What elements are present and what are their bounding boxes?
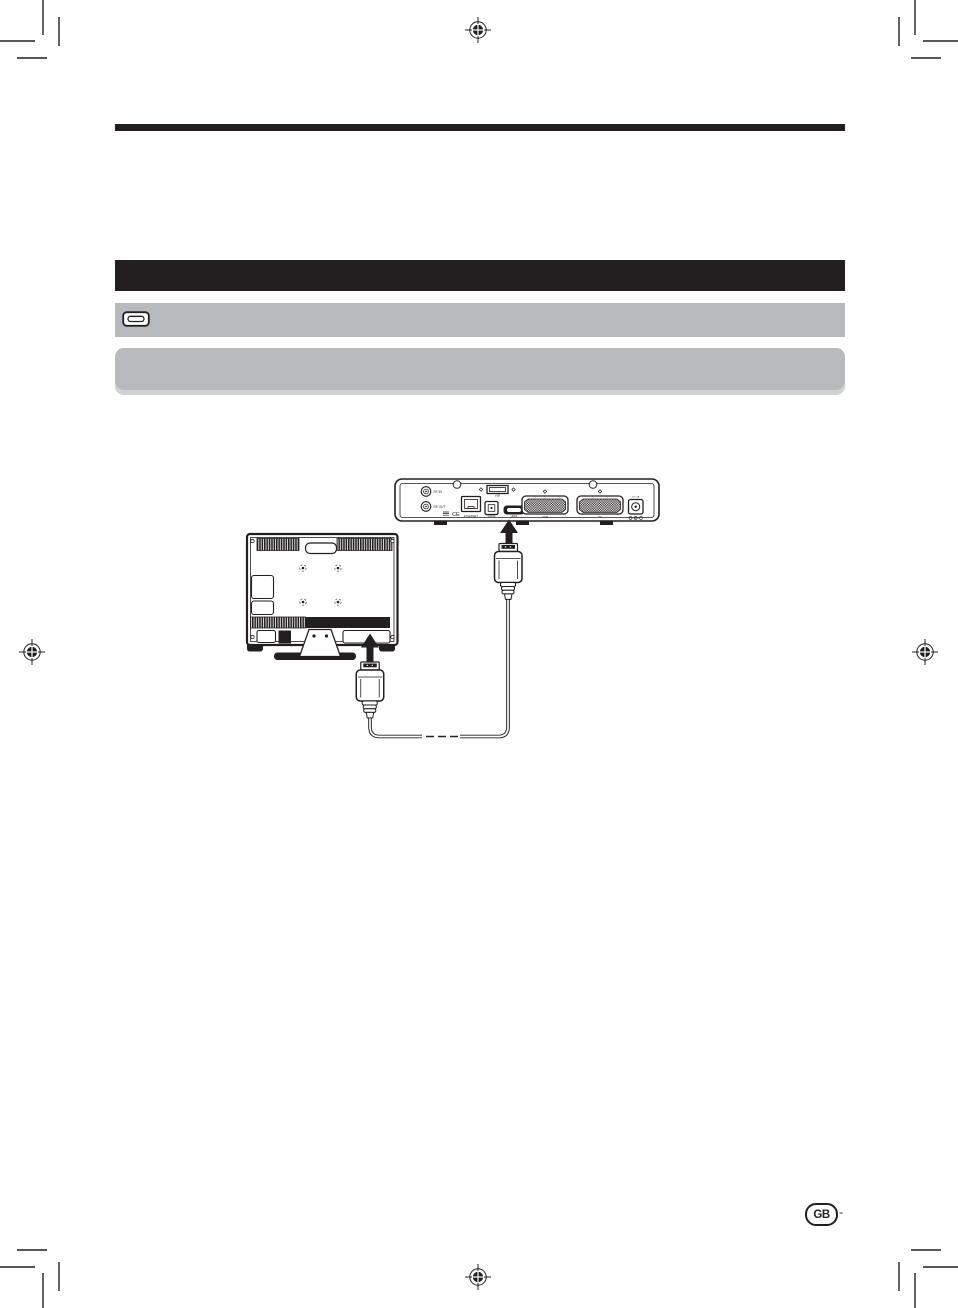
vcr-label: VCR [542, 515, 548, 519]
registration-target-left [19, 639, 45, 665]
bottom-terminal-recess-left [257, 631, 276, 643]
tv-label: TV [598, 515, 602, 519]
hdmi-label: HDMI [511, 514, 518, 518]
ethernet-label: ETHERNET [464, 514, 478, 518]
tv-foot-right [379, 645, 395, 652]
stb-foot [434, 521, 447, 526]
tv-foot-left [247, 645, 263, 652]
tv-handle-recess [306, 543, 337, 554]
chassis-screw [453, 481, 461, 489]
top-rule [115, 124, 845, 131]
stand-screw [312, 634, 315, 637]
hdmi-connection-diagram: RF IN RF OUT CE ETHERNET [235, 472, 670, 752]
hdmi-plug-stb-end [495, 544, 523, 600]
bottom-black-strip [306, 617, 391, 628]
hdmi-plug-tv-end [356, 662, 384, 718]
frame-screw [251, 539, 254, 542]
tv-rear [247, 534, 398, 660]
frame-screw [391, 635, 394, 638]
arrow-to-stb-hdmi [500, 520, 518, 545]
registration-target-right [912, 639, 938, 665]
bottom-black-module [279, 631, 292, 644]
ce-mark: CE [452, 512, 460, 518]
page-number-dash: - [839, 1205, 843, 1219]
frame-screw [251, 635, 254, 638]
hdmi-port-icon [122, 311, 150, 327]
side-terminal-panel [252, 576, 274, 599]
stb-foot [516, 521, 529, 526]
section-header-bar [115, 260, 845, 291]
connector-note-bar [115, 303, 845, 337]
registration-target-top [465, 17, 491, 43]
chassis-screw [589, 481, 597, 489]
country-code-badge: GB [805, 1203, 838, 1226]
vent-grille-bottom [251, 617, 306, 628]
country-code-label: GB [813, 1209, 829, 1221]
set-top-box-rear: RF IN RF OUT CE ETHERNET [395, 479, 659, 525]
spdif-label: S/PDIF [487, 514, 496, 518]
vent-grille-top-left [257, 539, 299, 551]
stand-screw [325, 634, 328, 637]
info-bar [115, 348, 845, 395]
registration-target-bottom [465, 1264, 491, 1290]
stb-foot [600, 521, 613, 526]
rf-in-label: RF IN [434, 490, 443, 494]
usb-label: USB [495, 494, 501, 498]
power-spec-label: 12V 2A [632, 496, 640, 499]
ethernet-port: ETHERNET [462, 497, 481, 519]
rf-out-label: RF OUT [434, 505, 446, 509]
manual-page: RF IN RF OUT CE ETHERNET [0, 0, 958, 1308]
side-terminal-panel-small [252, 601, 274, 615]
frame-screw [391, 539, 394, 542]
vent-grille-top-right [337, 539, 392, 551]
